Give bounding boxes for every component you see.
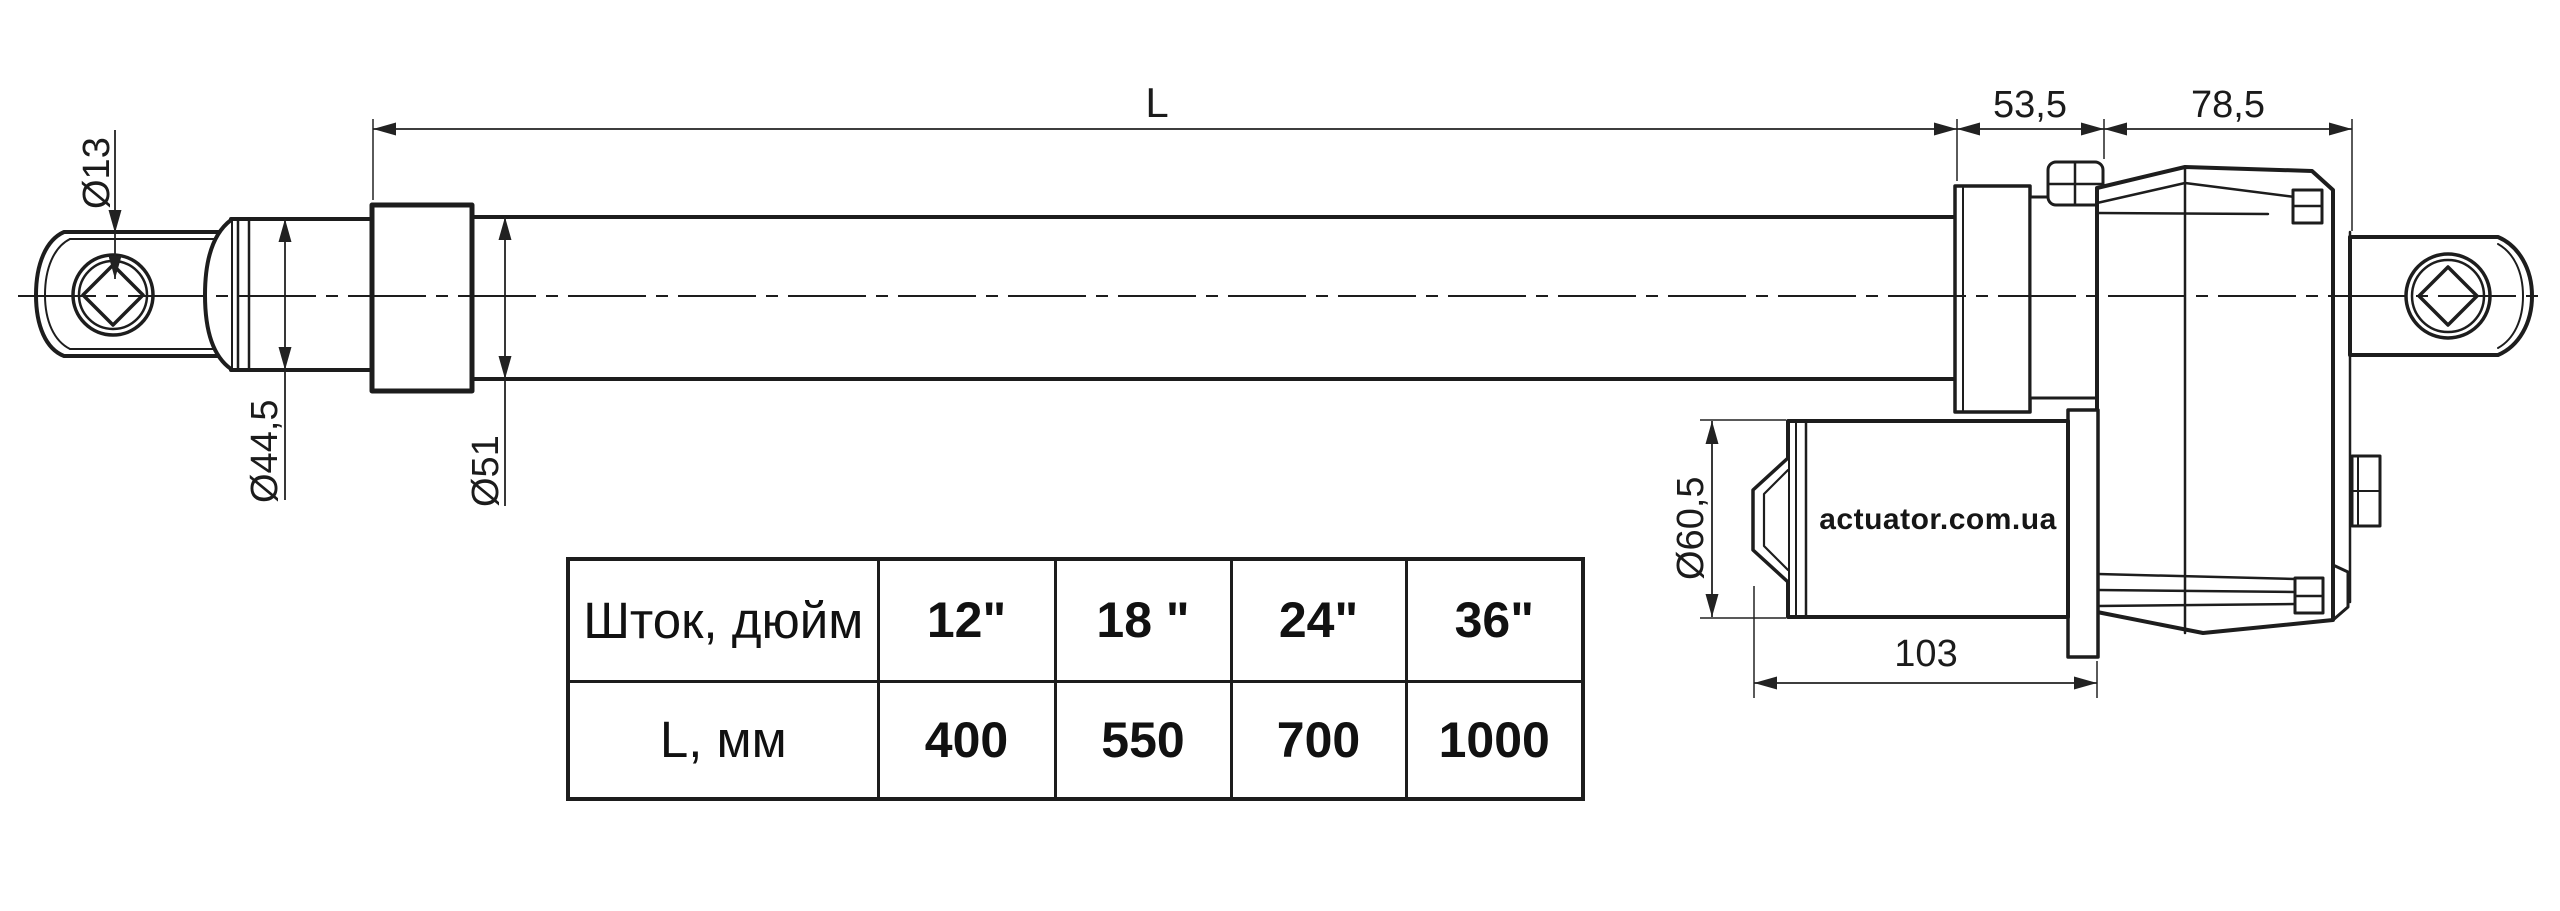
length-value-400: 400 [878, 681, 1055, 799]
stroke-value-18: 18 " [1055, 559, 1231, 681]
front-collar [372, 205, 472, 391]
terminal-block-top [2293, 190, 2322, 223]
dim-label-L: L [1145, 79, 1168, 126]
terminal-block-bottom [2295, 578, 2323, 613]
motor-flange [2068, 410, 2098, 657]
row-label-length: L, мм [568, 681, 878, 799]
length-value-1000: 1000 [1406, 681, 1583, 799]
top-cap [2048, 162, 2103, 205]
side-connector [2352, 456, 2380, 526]
dim-label-53-5: 53,5 [1993, 84, 2067, 126]
motor-brush-cap [1753, 458, 1788, 582]
table-row-length: L, мм 400 550 700 1000 [568, 681, 1583, 799]
rod-eye [36, 232, 228, 356]
stroke-value-12: 12" [878, 559, 1055, 681]
gear-adapter [2030, 197, 2097, 398]
row-label-stroke: Шток, дюйм [568, 559, 878, 681]
dim-label-78-5: 78,5 [2191, 84, 2265, 126]
stroke-value-36: 36" [1406, 559, 1583, 681]
rear-plate [2333, 190, 2350, 620]
dim-label-motor: Ø60,5 [1670, 476, 1712, 580]
technical-drawing-canvas: L 53,5 78,5 103 Ø13 Ø44,5 Ø51 Ø60,5 actu… [0, 0, 2560, 911]
cylinder-tube [472, 217, 1957, 379]
rear-end-block [1955, 186, 2030, 412]
length-value-550: 550 [1055, 681, 1231, 799]
spec-table: Шток, дюйм 12" 18 " 24" 36" L, мм 400 55… [566, 557, 1585, 801]
dim-label-eye-hole: Ø13 [76, 137, 118, 209]
dim-label-tube: Ø51 [465, 435, 507, 507]
dim-label-103: 103 [1894, 633, 1957, 675]
length-value-700: 700 [1231, 681, 1406, 799]
watermark-text: actuator.com.ua [1819, 503, 2057, 536]
gear-housing [2097, 167, 2333, 633]
dim-label-front-cap: Ø44,5 [244, 399, 286, 503]
stroke-value-24: 24" [1231, 559, 1406, 681]
table-row-stroke: Шток, дюйм 12" 18 " 24" 36" [568, 559, 1583, 681]
